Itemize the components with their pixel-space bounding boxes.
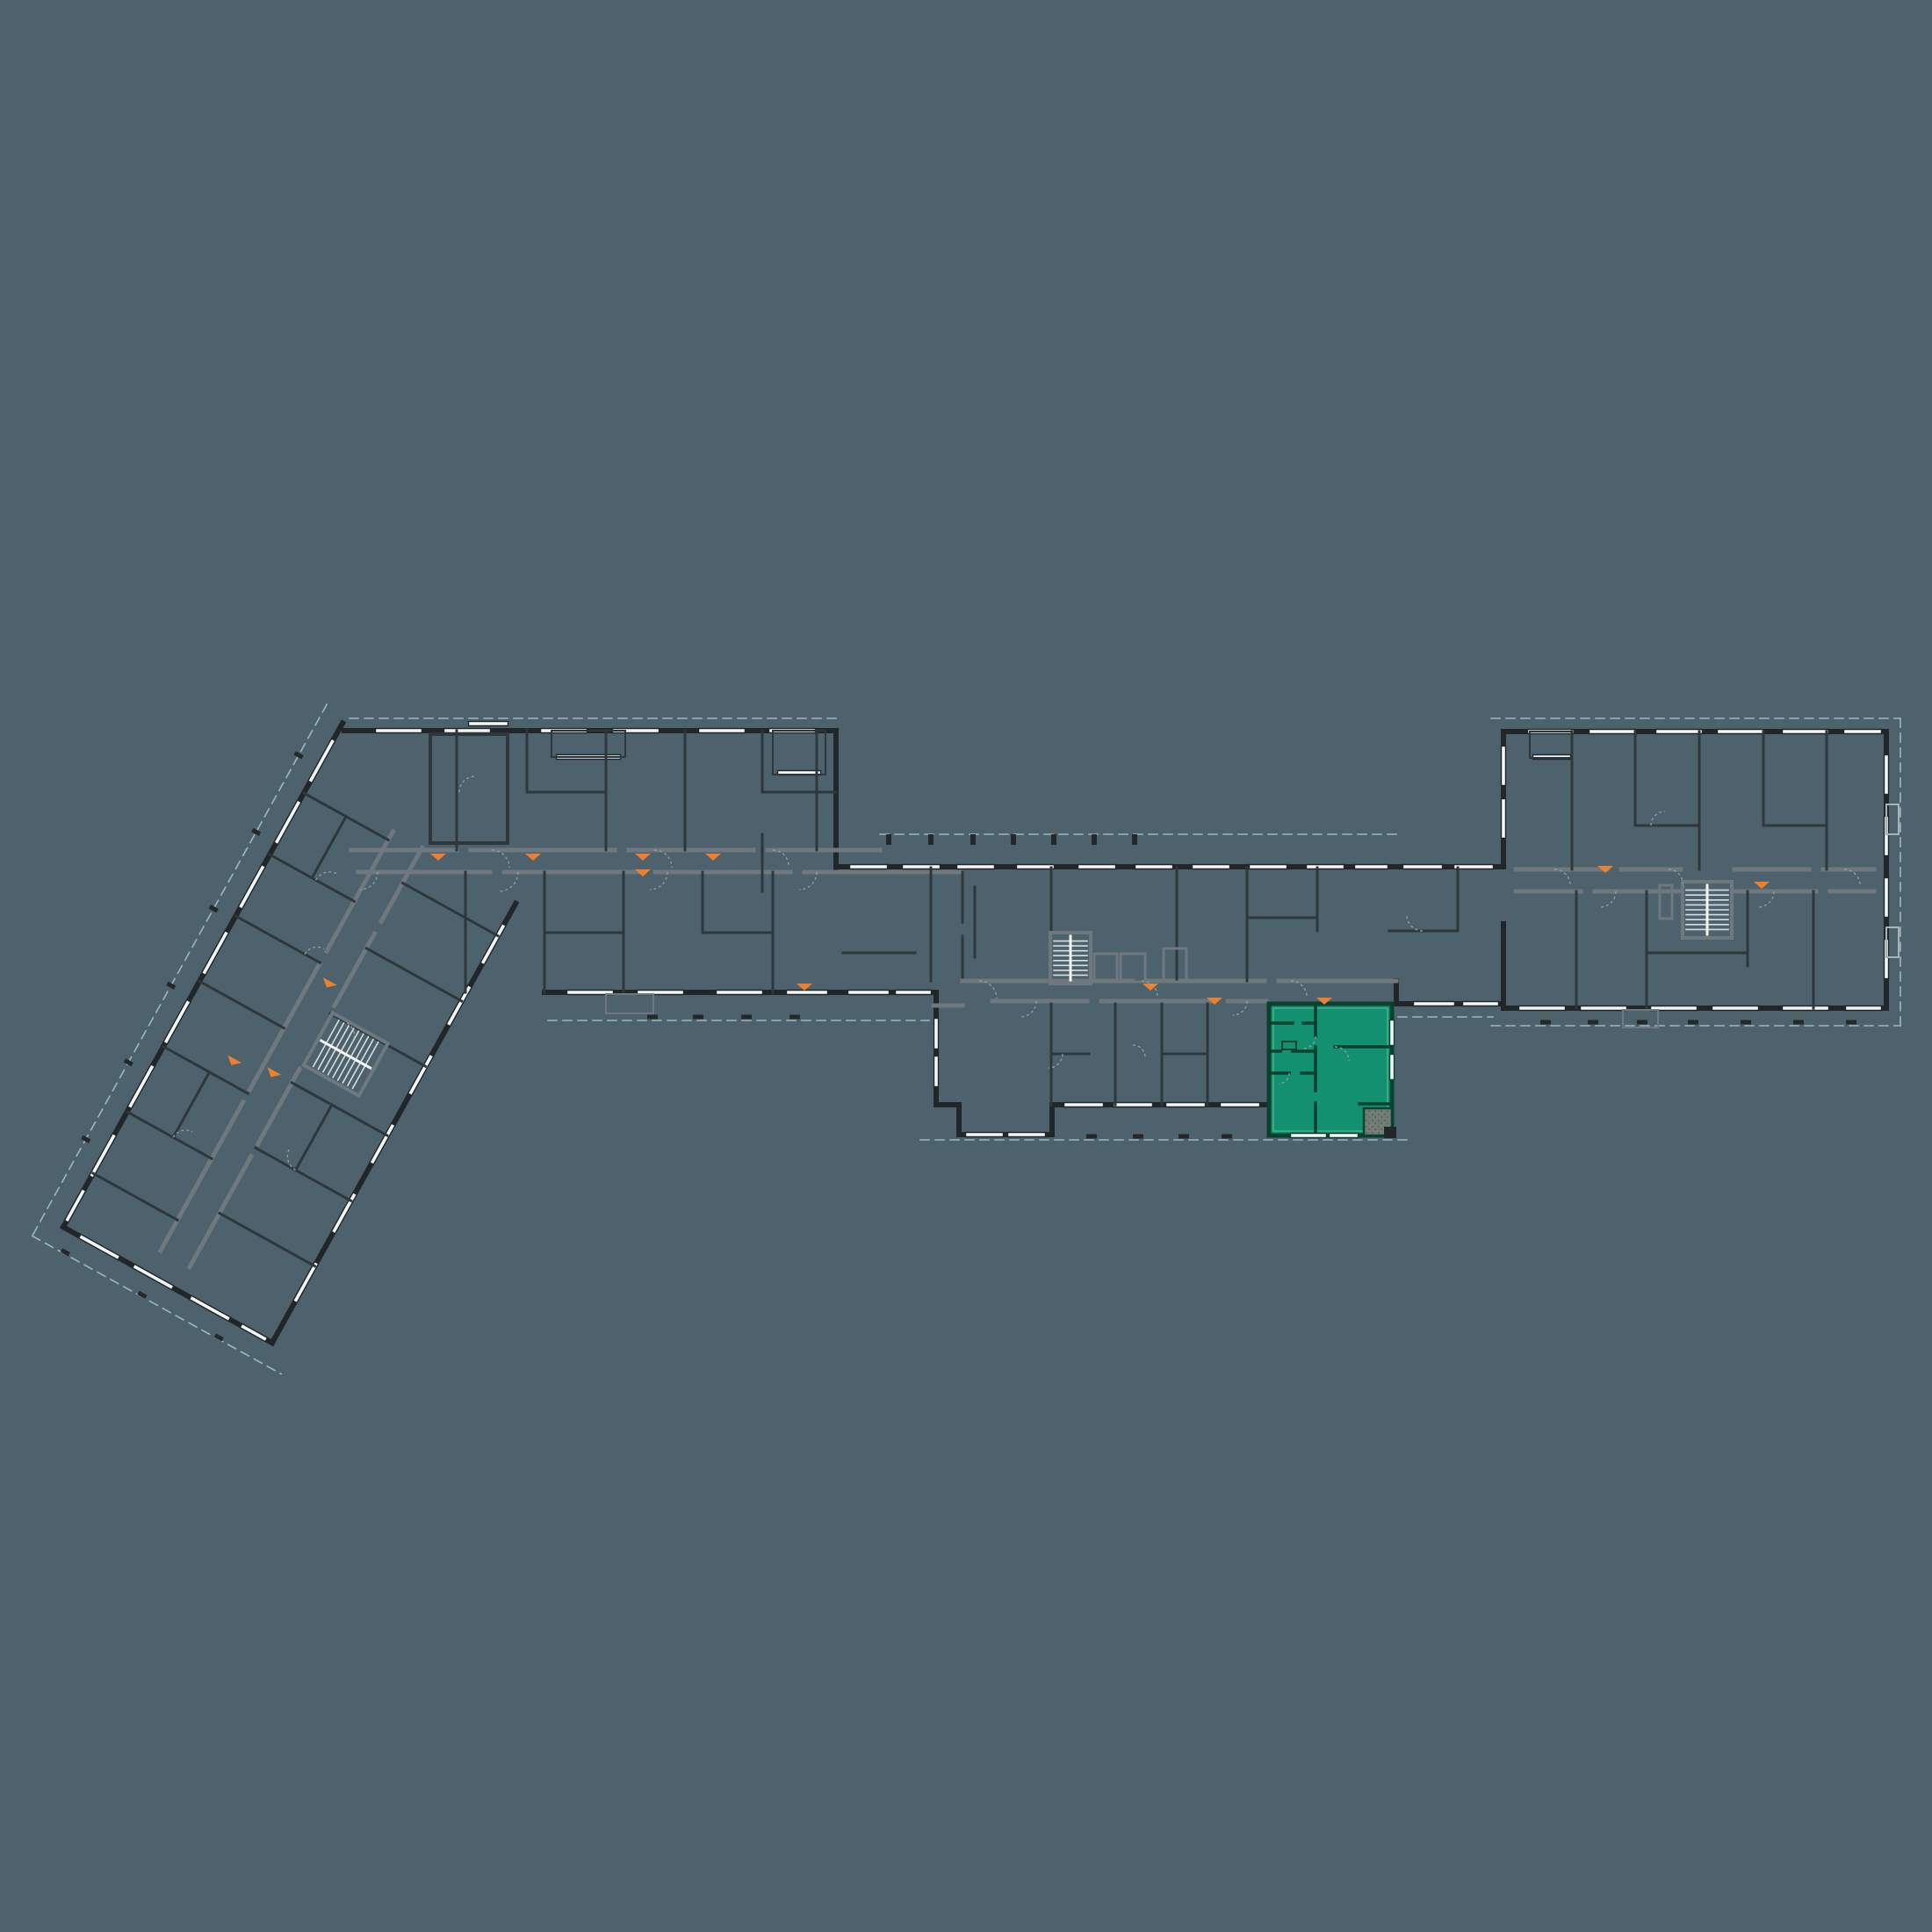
floor-plan-canvas <box>0 0 1932 1932</box>
building-floor-plan <box>0 0 1932 1932</box>
selected-unit[interactable] <box>1269 998 1396 1138</box>
background <box>0 0 1932 1932</box>
